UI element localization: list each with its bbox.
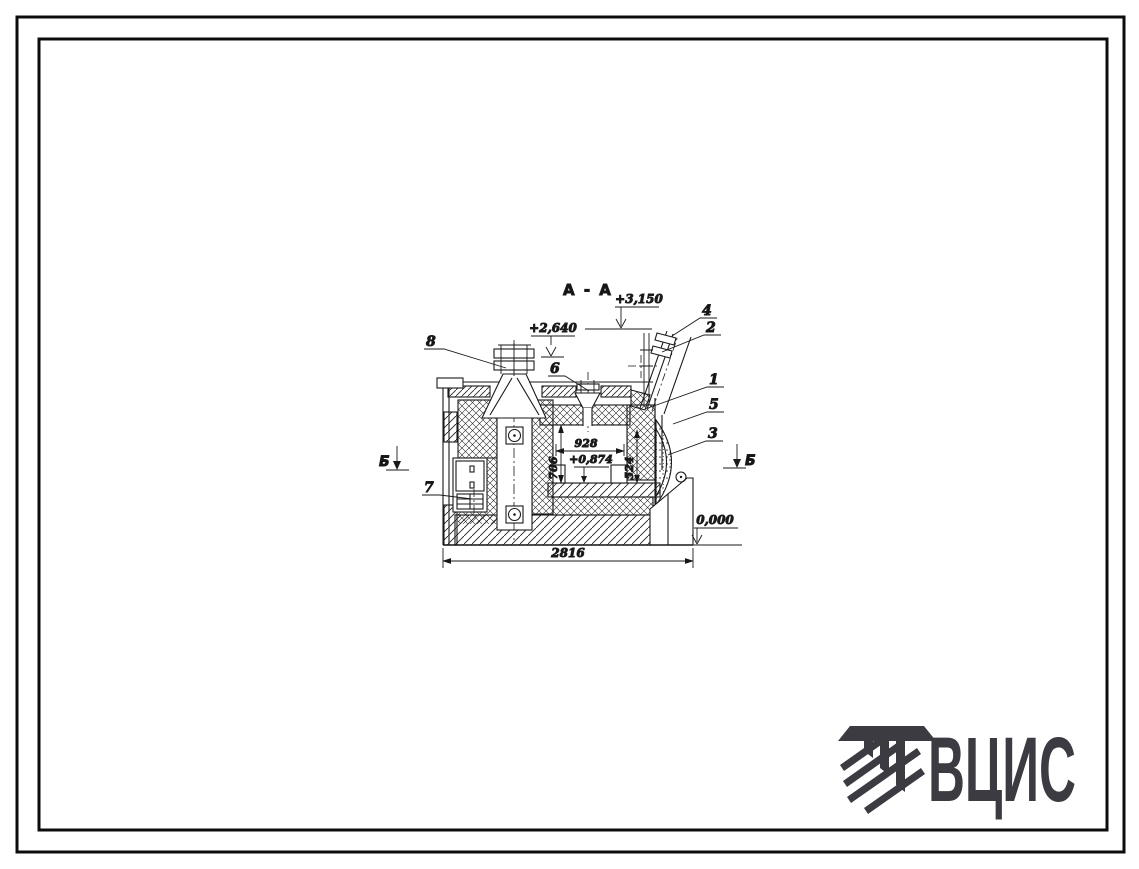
dim-chamber-width: 928 xyxy=(575,437,598,450)
callout-7: 7 xyxy=(424,480,434,496)
scanned-drawing-page: А - А 2816 928 706 524 +3,150 +2,640 +0,… xyxy=(0,0,1139,869)
section-marker-left: Б xyxy=(379,446,409,470)
dim-chamber-height: 706 xyxy=(547,456,560,479)
vcis-logo-text: ВЦИС xyxy=(928,719,1076,821)
elevation-left-chimney: +2,640 xyxy=(529,321,577,335)
dim-right-wall-height: 524 xyxy=(623,457,636,480)
roof-lip xyxy=(437,378,463,388)
callout-8: 8 xyxy=(426,334,436,350)
elevation-duct-top: +3,150 xyxy=(615,292,663,306)
elevation-hearth: +0,874 xyxy=(569,453,613,466)
callout-4: 4 xyxy=(702,303,712,319)
callout-2: 2 xyxy=(705,320,716,336)
callout-5: 5 xyxy=(709,397,719,413)
side-door xyxy=(453,458,487,513)
callout-1: 1 xyxy=(709,372,719,388)
foundation xyxy=(455,515,655,545)
elevation-ground: 0,000 xyxy=(696,513,734,527)
callout-6: 6 xyxy=(550,361,560,377)
left-chimney xyxy=(482,343,546,418)
vcis-logo: ВЦИС xyxy=(838,719,1076,821)
dim-overall-width: 2816 xyxy=(550,546,585,560)
svg-text:Б: Б xyxy=(745,453,756,469)
svg-text:Б: Б xyxy=(379,454,390,470)
section-title: А - А xyxy=(563,281,613,299)
callout-3: 3 xyxy=(708,426,718,442)
vcis-logo-emblem xyxy=(838,726,936,814)
section-marker-right: Б xyxy=(723,444,756,469)
blueprint-canvas: А - А 2816 928 706 524 +3,150 +2,640 +0,… xyxy=(0,0,1139,869)
